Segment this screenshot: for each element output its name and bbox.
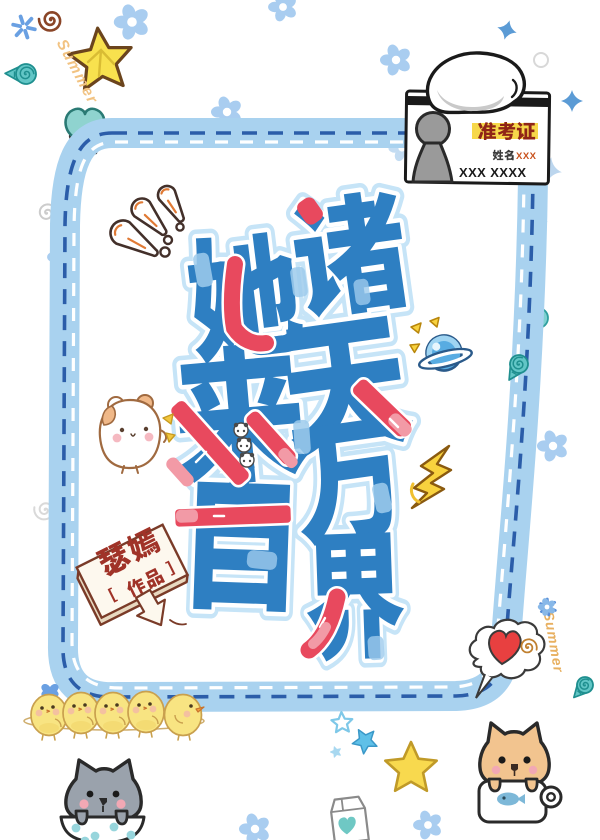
svg-text:XXX XXXX: XXX XXXX <box>459 165 527 180</box>
svg-text:XXX: XXX <box>516 151 537 162</box>
svg-text::: : <box>510 151 513 162</box>
